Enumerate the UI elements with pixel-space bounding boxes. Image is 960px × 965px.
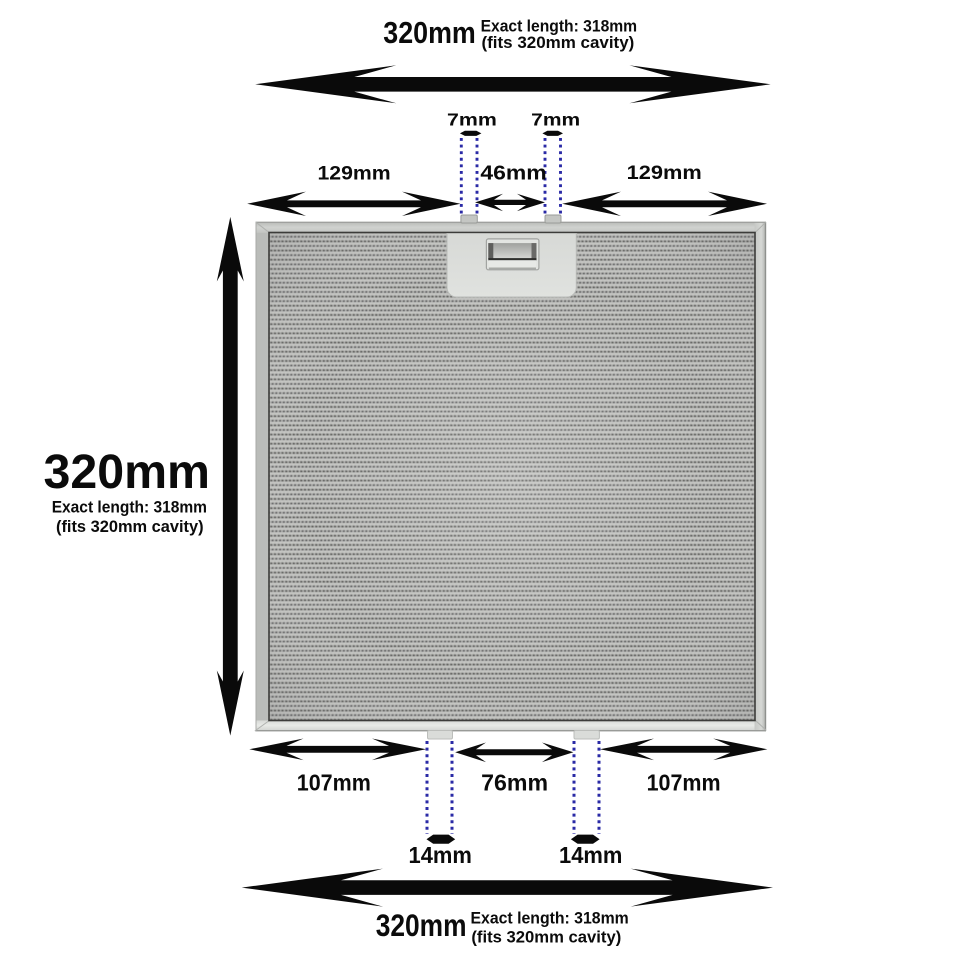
svg-text:320mm: 320mm bbox=[383, 15, 476, 50]
svg-text:Exact length: 318mm: Exact length: 318mm bbox=[52, 499, 207, 517]
svg-text:7mm: 7mm bbox=[531, 110, 580, 130]
svg-text:7mm: 7mm bbox=[447, 110, 497, 130]
svg-text:76mm: 76mm bbox=[481, 769, 548, 795]
svg-text:107mm: 107mm bbox=[647, 769, 721, 795]
svg-text:46mm: 46mm bbox=[480, 162, 546, 184]
svg-text:320mm: 320mm bbox=[376, 907, 467, 943]
svg-text:14mm: 14mm bbox=[409, 842, 472, 868]
svg-text:Exact length: 318mm: Exact length: 318mm bbox=[471, 910, 629, 928]
svg-text:320mm: 320mm bbox=[44, 446, 210, 499]
svg-text:(fits 320mm cavity): (fits 320mm cavity) bbox=[482, 34, 635, 52]
svg-text:Exact length: 318mm: Exact length: 318mm bbox=[481, 17, 637, 35]
svg-text:14mm: 14mm bbox=[559, 842, 622, 868]
svg-text:(fits 320mm cavity): (fits 320mm cavity) bbox=[471, 929, 621, 947]
svg-text:(fits 320mm cavity): (fits 320mm cavity) bbox=[56, 517, 204, 536]
svg-text:129mm: 129mm bbox=[318, 163, 391, 185]
svg-text:107mm: 107mm bbox=[297, 769, 371, 795]
svg-text:129mm: 129mm bbox=[627, 162, 702, 184]
